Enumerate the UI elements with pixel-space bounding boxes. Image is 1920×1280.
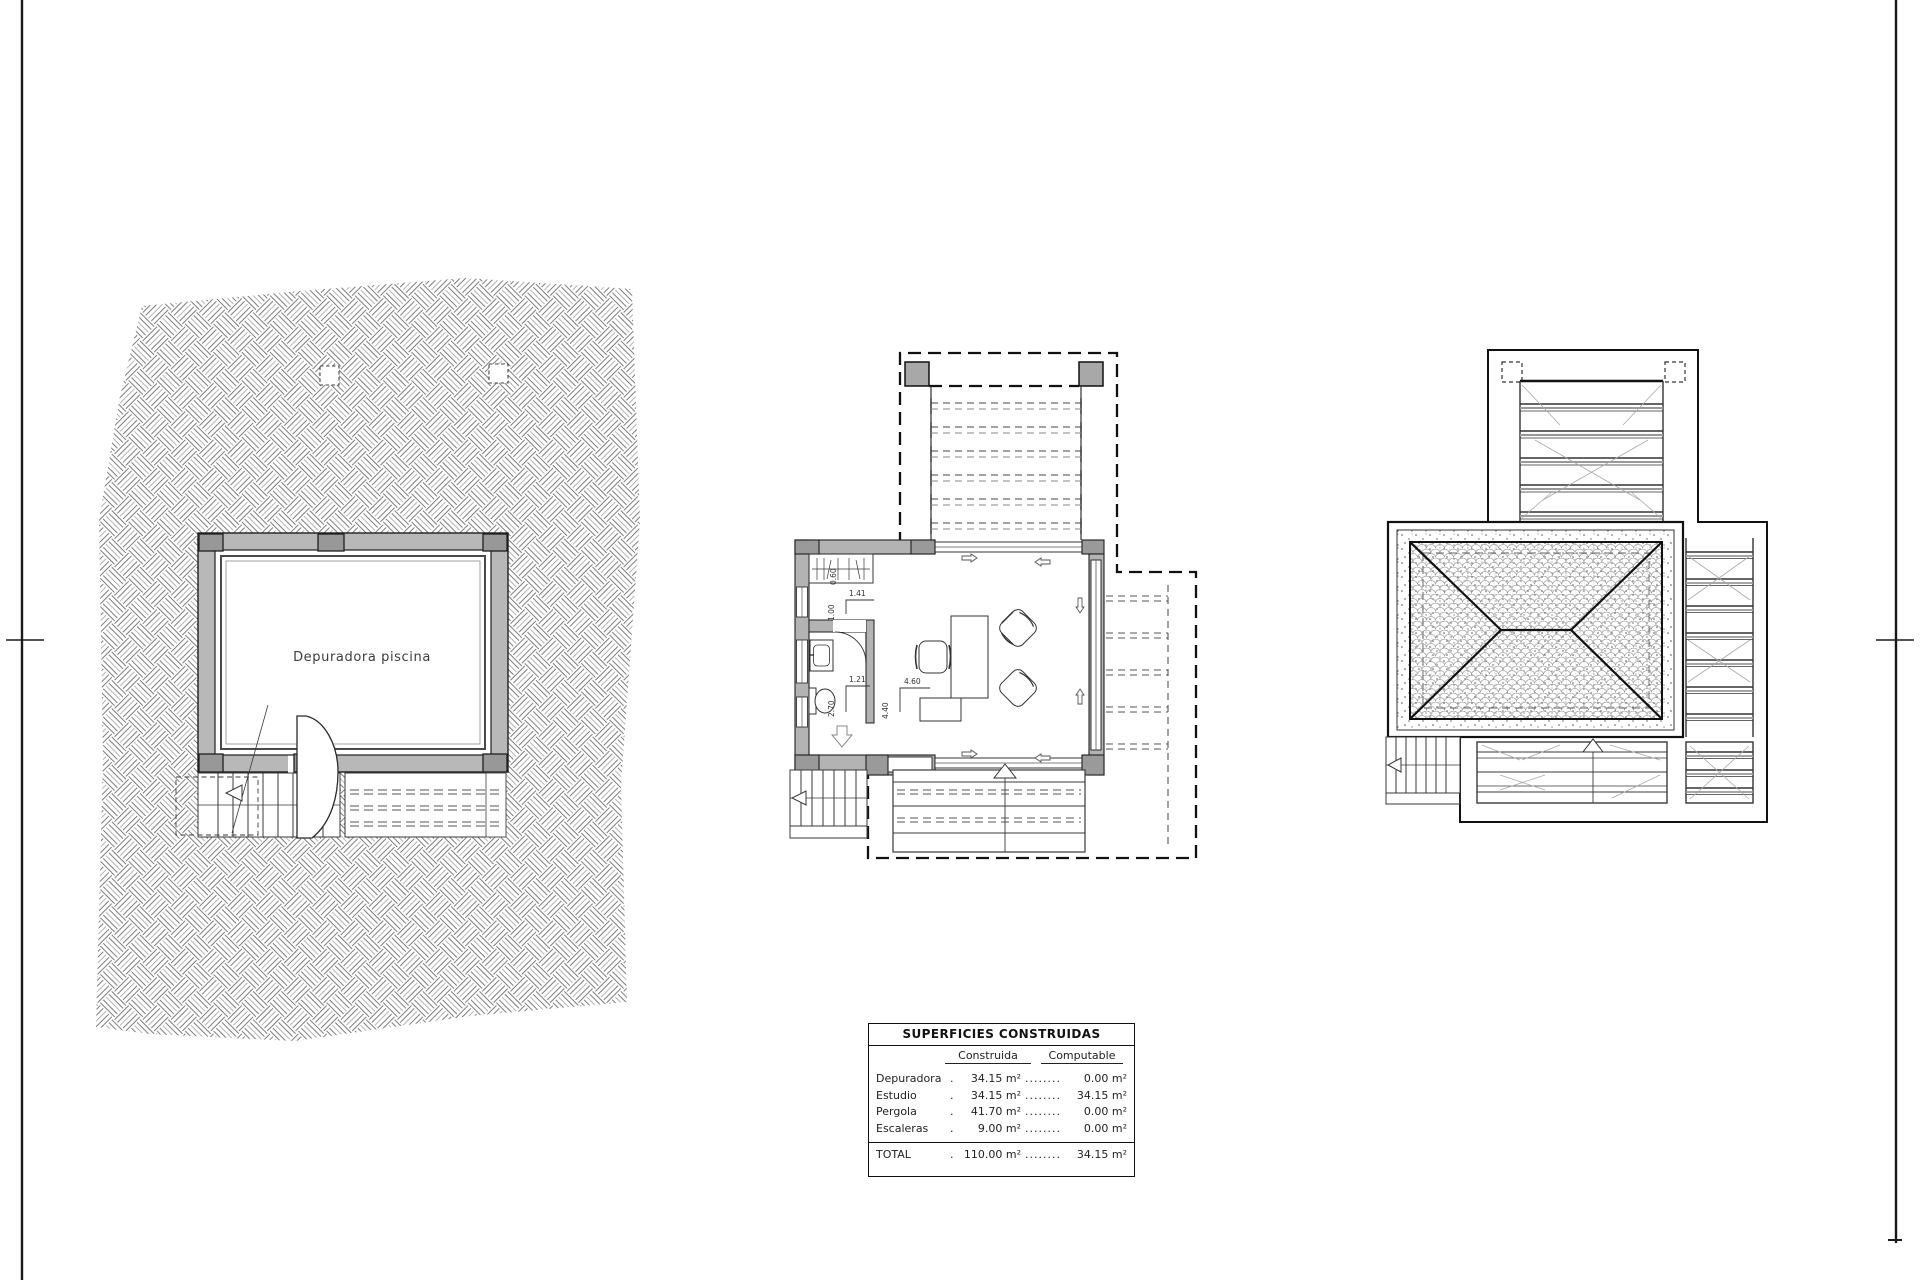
total-constructed-value: 110.00 m² xyxy=(955,1147,1021,1164)
pergola-post-dashed xyxy=(489,364,508,383)
roof-pergola-bottom-right xyxy=(1686,742,1753,803)
column-header-computable: Computable xyxy=(1041,1049,1123,1064)
table-row: Estudio............34.15 m²........34.15… xyxy=(876,1088,1127,1105)
drawing-sheet: { "drawing": { "site_plan": { "room_labe… xyxy=(0,0,1920,1280)
pergola-slats-right xyxy=(1106,585,1168,845)
roof-stairs xyxy=(1386,737,1460,804)
dim-room-depth: 4.40 xyxy=(881,702,890,719)
row-label: Escaleras xyxy=(876,1121,950,1138)
computable-value: 0.00 m² xyxy=(1065,1071,1127,1088)
table-total-row: TOTAL............110.00 m²........34.15 … xyxy=(876,1147,1127,1164)
computable-value: 0.00 m² xyxy=(1065,1104,1127,1121)
pergola-post xyxy=(905,362,929,386)
pergola-post xyxy=(1079,362,1103,386)
roof-plan xyxy=(1386,350,1767,822)
dim-entry-depth: 1.00 xyxy=(827,604,836,621)
table-row: Escaleras............9.00 m²........0.00… xyxy=(876,1121,1127,1138)
desk xyxy=(951,616,988,698)
dim-bath-depth: 2.70 xyxy=(827,700,836,717)
dot-leader: ........ xyxy=(1021,1121,1065,1138)
total-label: TOTAL xyxy=(876,1147,950,1164)
column-header-construida: Construida xyxy=(945,1049,1031,1064)
dim-closet-width: 0.60 xyxy=(829,568,838,585)
dim-entry-width: 1.41 xyxy=(849,589,866,598)
dot-leader: ........ xyxy=(1021,1088,1065,1105)
row-label: Pergola xyxy=(876,1104,950,1121)
table-row: Depuradora............34.15 m²........0.… xyxy=(876,1071,1127,1088)
roof-block xyxy=(1388,522,1683,737)
room-label-depuradora: Depuradora piscina xyxy=(280,650,444,665)
studio-terrace xyxy=(893,764,1085,852)
site-step-band xyxy=(345,773,506,837)
sink xyxy=(810,640,833,671)
table-row: Pergola............41.70 m²........0.00 … xyxy=(876,1104,1127,1121)
areas-table-title: SUPERFICIES CONSTRUIDAS xyxy=(869,1024,1134,1046)
dim-bath-width: 1.21 xyxy=(849,675,866,684)
computable-value: 34.15 m² xyxy=(1065,1088,1127,1105)
pergola-slats-top xyxy=(931,398,1081,534)
row-label: Depuradora xyxy=(876,1071,950,1088)
total-computable-value: 34.15 m² xyxy=(1065,1147,1127,1164)
roof-terrace xyxy=(1477,739,1667,803)
computable-value: 0.00 m² xyxy=(1065,1121,1127,1138)
studio-stairs xyxy=(790,770,867,838)
dot-leader: ........ xyxy=(1021,1071,1065,1088)
dot-leader: ........ xyxy=(1021,1104,1065,1121)
constructed-value: 34.15 m² xyxy=(955,1088,1021,1105)
row-label: Estudio xyxy=(876,1088,950,1105)
constructed-value: 41.70 m² xyxy=(955,1104,1021,1121)
studio-plan xyxy=(790,353,1196,858)
dot-leader: ........ xyxy=(1021,1147,1065,1164)
areas-table: SUPERFICIES CONSTRUIDAS Construida Compu… xyxy=(868,1023,1135,1177)
desk-chair xyxy=(916,641,951,673)
pergola-post-dashed xyxy=(320,366,339,385)
constructed-value: 34.15 m² xyxy=(955,1071,1021,1088)
table-separator xyxy=(869,1142,1134,1143)
constructed-value: 9.00 m² xyxy=(955,1121,1021,1138)
dim-room-width: 4.60 xyxy=(904,677,921,686)
